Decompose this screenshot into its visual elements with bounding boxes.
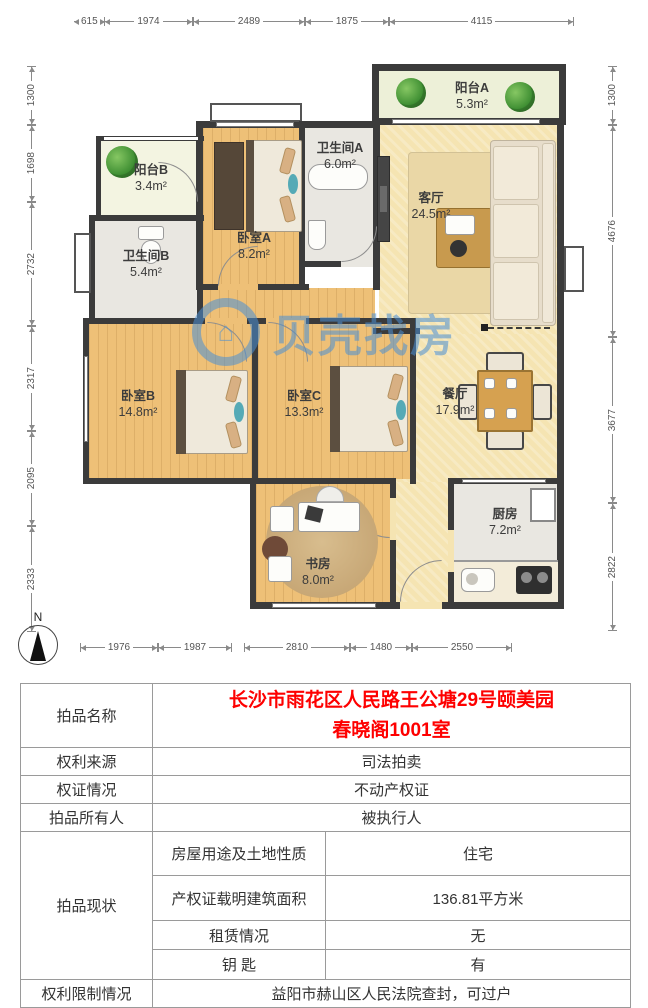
kettle — [450, 240, 467, 257]
wall — [557, 118, 564, 609]
dim-left-5: 2095 — [24, 431, 38, 526]
dim-top-2: 1974 — [104, 14, 193, 28]
wall — [390, 478, 396, 602]
table-row: 拍品名称 长沙市雨花区人民路王公塘29号颐美园春晓阁1001室 — [21, 684, 631, 748]
sofa-cushion — [493, 146, 539, 200]
sub-row-value: 136.81平方米 — [326, 876, 631, 921]
sub-row-label: 钥 匙 — [153, 950, 326, 980]
row-value: 长沙市雨花区人民路王公塘29号颐美园春晓阁1001室 — [153, 684, 631, 748]
sub-row-value: 住宅 — [326, 832, 631, 876]
dim-right-3: 3677 — [605, 337, 619, 503]
room-label-bath-a: 卫生间A6.0m² — [304, 140, 376, 173]
dim-label: 2550 — [448, 642, 476, 653]
sink-basin — [466, 573, 478, 585]
table-row: 拍品现状 房屋用途及土地性质 住宅 — [21, 832, 631, 876]
armchair — [270, 506, 294, 532]
toilet — [308, 220, 326, 250]
wall — [372, 64, 566, 71]
wall — [372, 64, 379, 125]
dim-label: 1987 — [181, 642, 209, 653]
room-label-balcony-a: 阳台A5.3m² — [430, 80, 514, 113]
sofa-back — [542, 143, 554, 323]
wall — [83, 478, 256, 484]
auction-info-table: 拍品名称 长沙市雨花区人民路王公塘29号颐美园春晓阁1001室 权利来源 司法拍… — [20, 683, 631, 1008]
dim-top-1: 615 — [74, 14, 104, 28]
toilet — [138, 226, 164, 240]
sub-row-label: 租赁情况 — [153, 921, 326, 950]
wall — [559, 64, 566, 125]
table-row: 权证情况 不动产权证 — [21, 776, 631, 804]
threshold-dashed-line — [488, 327, 550, 329]
dim-bottom-5: 2550 — [412, 640, 512, 654]
plate — [506, 378, 517, 389]
dim-left-4: 2317 — [24, 326, 38, 431]
dim-label: 3677 — [607, 406, 618, 434]
dim-right-4: 2822 — [605, 503, 619, 631]
row-label: 拍品现状 — [21, 832, 153, 980]
beike-logo-icon: ⌂ — [192, 298, 260, 366]
dim-label: 1974 — [134, 16, 162, 27]
north-compass-icon: N — [14, 610, 62, 665]
row-label: 拍品所有人 — [21, 804, 153, 832]
dim-label: 2333 — [26, 565, 37, 593]
duct-shaft — [564, 246, 584, 292]
floor-plan: 615 1974 2489 1875 4115 1300 1698 2732 2… — [0, 0, 648, 680]
room-label-bedroom-c: 卧室C13.3m² — [262, 388, 346, 421]
dim-top-4: 1875 — [305, 14, 389, 28]
bed-cushion — [234, 402, 244, 422]
bed-headboard — [246, 140, 254, 232]
row-label: 权证情况 — [21, 776, 153, 804]
sub-row-label: 房屋用途及土地性质 — [153, 832, 326, 876]
door-opening — [341, 261, 375, 267]
window — [74, 233, 91, 293]
window — [462, 479, 546, 483]
dim-bottom-4: 1480 — [350, 640, 412, 654]
table-row: 拍品所有人 被执行人 — [21, 804, 631, 832]
dim-label: 1300 — [26, 81, 37, 109]
bed-cushion — [288, 174, 298, 194]
window — [216, 122, 294, 127]
sub-row-value: 有 — [326, 950, 631, 980]
dim-label: 2732 — [26, 250, 37, 278]
room-label-living: 客厅24.5m² — [385, 190, 477, 223]
compass-needle — [30, 631, 46, 661]
dining-chair — [532, 384, 552, 420]
dim-label: 1976 — [105, 642, 133, 653]
burner — [521, 572, 532, 583]
window — [392, 119, 540, 124]
dim-label: 2317 — [26, 364, 37, 392]
auction-listing-page: { "floorplan": { "watermark_text": "贝壳找房… — [0, 0, 648, 994]
dim-label: 1875 — [333, 16, 361, 27]
row-value: 不动产权证 — [153, 776, 631, 804]
dim-label: 1480 — [367, 642, 395, 653]
room-label-bedroom-a: 卧室A8.2m² — [208, 230, 300, 263]
dim-label: 615 — [78, 16, 101, 27]
dim-right-1: 1300 — [605, 66, 619, 125]
dim-label: 1698 — [26, 149, 37, 177]
dim-bottom-1: 1976 — [80, 640, 158, 654]
dim-label: 2822 — [607, 553, 618, 581]
dim-bottom-2: 1987 — [158, 640, 232, 654]
dim-label: 2489 — [235, 16, 263, 27]
wardrobe — [214, 142, 244, 230]
wall — [93, 215, 204, 221]
door-opening — [390, 498, 396, 540]
threshold-marker — [481, 324, 488, 331]
dining-chair — [486, 352, 524, 372]
plant-icon — [396, 78, 426, 108]
window — [272, 603, 376, 608]
room-label-dining: 餐厅17.9m² — [420, 386, 490, 419]
sub-row-label: 产权证载明建筑面积 — [153, 876, 326, 921]
dim-label: 4676 — [607, 217, 618, 245]
dim-bottom-3: 2810 — [244, 640, 350, 654]
sofa-cushion — [493, 204, 539, 258]
wall — [250, 478, 256, 609]
compass-circle — [18, 625, 58, 665]
balcony-railing — [104, 137, 198, 140]
bed-cushion — [396, 400, 406, 420]
row-label: 权利来源 — [21, 748, 153, 776]
entry-opening — [400, 602, 442, 609]
dim-label: 1300 — [607, 81, 618, 109]
burner — [537, 572, 548, 583]
dim-left-2: 1698 — [24, 125, 38, 202]
dining-chair — [486, 430, 524, 450]
dim-top-5: 4115 — [389, 14, 574, 28]
dim-right-2: 4676 — [605, 125, 619, 337]
dim-top-3: 2489 — [193, 14, 305, 28]
plate — [506, 408, 517, 419]
row-label: 拍品名称 — [21, 684, 153, 748]
wall — [250, 478, 396, 484]
dim-left-1: 1300 — [24, 66, 38, 125]
room-label-kitchen: 厨房7.2m² — [470, 506, 540, 539]
window — [84, 356, 88, 442]
watermark: ⌂ 贝壳找房 — [192, 298, 456, 366]
table-row: 权利来源 司法拍卖 — [21, 748, 631, 776]
room-label-bath-b: 卫生间B5.4m² — [100, 248, 192, 281]
dim-left-3: 2732 — [24, 202, 38, 326]
dim-label: 4115 — [468, 16, 496, 27]
dim-label: 2810 — [283, 642, 311, 653]
watermark-text: 贝壳找房 — [272, 300, 456, 364]
wall — [96, 136, 101, 220]
sofa-cushion — [493, 262, 539, 320]
property-address: 长沙市雨花区人民路王公塘29号颐美园春晓阁1001室 — [224, 686, 559, 745]
house-glyph: ⌂ — [218, 316, 235, 348]
bay-window — [210, 103, 302, 122]
sub-row-value: 无 — [326, 921, 631, 950]
room-label-study: 书房8.0m² — [283, 556, 353, 589]
room-label-bedroom-b: 卧室B14.8m² — [96, 388, 180, 421]
row-value: 司法拍卖 — [153, 748, 631, 776]
dim-label: 2095 — [26, 464, 37, 492]
room-label-balcony-b: 阳台B3.4m² — [112, 162, 190, 195]
row-value: 被执行人 — [153, 804, 631, 832]
compass-label: N — [14, 610, 62, 624]
